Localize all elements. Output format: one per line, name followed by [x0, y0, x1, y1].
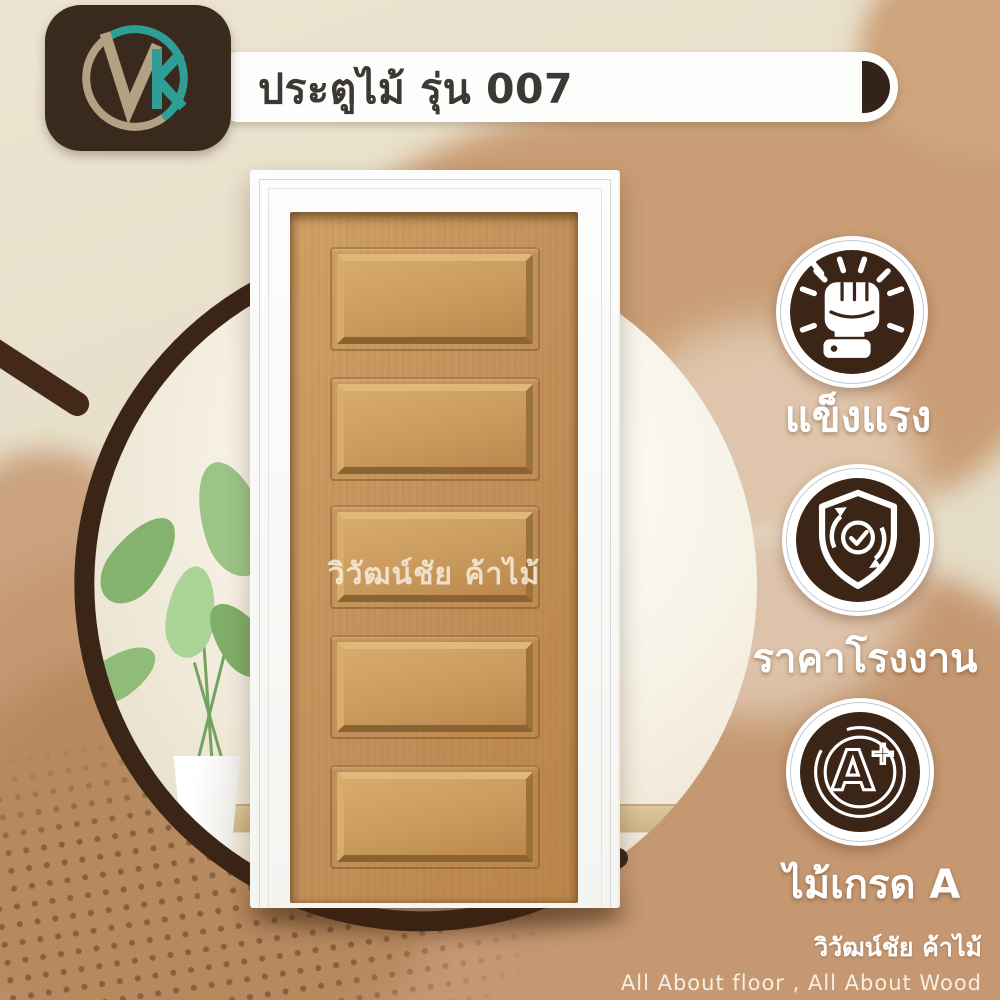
door-panel-1 — [330, 247, 540, 351]
grade-a-plus-icon: A + — [800, 712, 920, 832]
poster-canvas: วิวัฒน์ชัย ค้าไม้ ประตูไม้ รุ่น 007 — [0, 0, 1000, 1000]
svg-text:+: + — [870, 736, 896, 772]
feature-label-grade: ไม้เกรด A — [747, 852, 997, 916]
brand-logo — [45, 5, 231, 151]
page-title: ประตูไม้ รุ่น 007 — [258, 52, 573, 122]
footer-company-name: วิวัฒน์ชัย ค้าไม้ — [480, 928, 982, 968]
brush-streak — [0, 327, 94, 420]
footer-tagline: All About floor , All About Wood — [480, 971, 982, 995]
watermark-text: วิวัฒน์ชัย ค้าไม้ — [290, 551, 578, 598]
door-panel-4 — [330, 635, 540, 739]
door-panel-2 — [330, 377, 540, 481]
fist-strength-icon — [790, 250, 914, 374]
title-banner: ประตูไม้ รุ่น 007 — [224, 52, 898, 122]
feature-label-price: ราคาโรงงาน — [740, 626, 990, 690]
svg-text:A: A — [831, 740, 874, 804]
door-panel-5 — [330, 765, 540, 869]
vk-logo-icon — [45, 5, 231, 151]
feature-badge-strength — [776, 236, 928, 388]
feature-badge-grade: A + — [786, 698, 934, 846]
footer: วิวัฒน์ชัย ค้าไม้ All About floor , All … — [480, 928, 982, 995]
feature-badge-price — [782, 464, 934, 616]
shield-guarantee-icon — [796, 478, 920, 602]
feature-label-strength: แข็งแรง — [733, 384, 983, 450]
door-frame — [250, 170, 620, 908]
